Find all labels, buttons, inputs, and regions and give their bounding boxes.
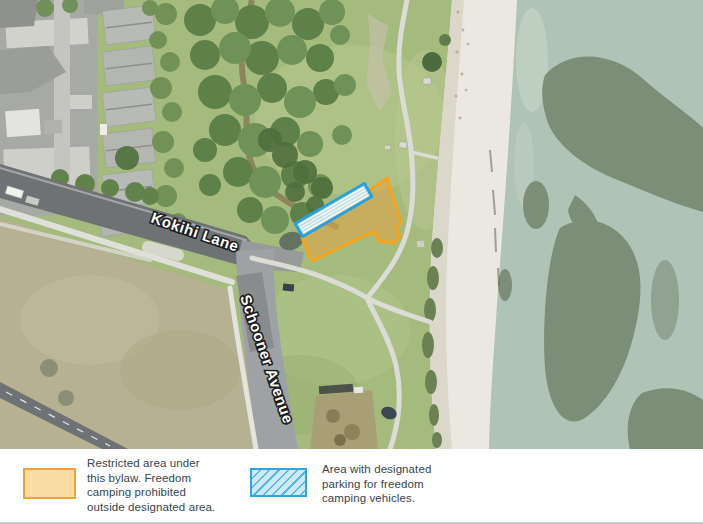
picnic-table xyxy=(399,141,408,148)
restricted-area-description: Restricted area under this bylaw. Freedo… xyxy=(87,456,217,514)
aerial-map-canvas: Kokihi Lane Schooner Avenue xyxy=(0,0,703,449)
aerial-map: Kokihi Lane Schooner Avenue xyxy=(0,0,703,449)
bench xyxy=(385,146,390,149)
freedom-camping-map-figure: Kokihi Lane Schooner Avenue Restricted a… xyxy=(0,0,703,524)
parked-vehicle-dark xyxy=(283,284,295,292)
designated-parking-description: Area with designated parking for freedom… xyxy=(322,462,440,506)
restricted-area-swatch xyxy=(23,468,76,499)
map-legend: Restricted area under this bylaw. Freedo… xyxy=(0,449,703,524)
picnic-table xyxy=(417,241,424,248)
picnic-table xyxy=(423,78,431,84)
designated-parking-swatch xyxy=(250,468,307,497)
parked-car-driveway xyxy=(100,124,107,135)
